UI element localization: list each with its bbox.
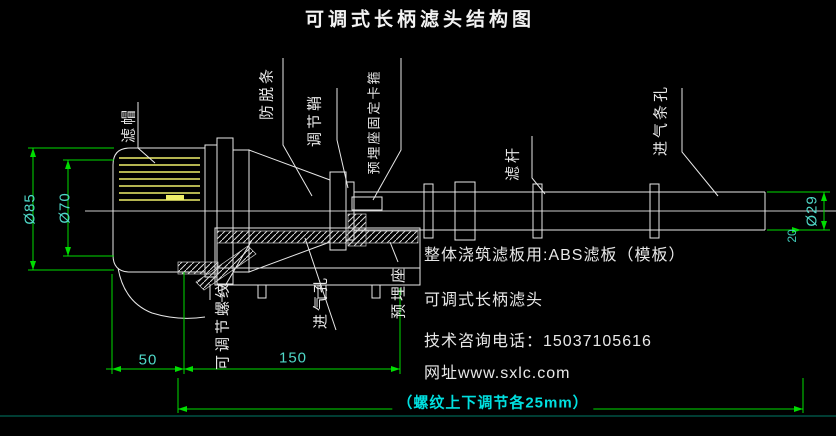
label-air-inlet-hole: 进气孔 [310, 275, 331, 329]
note-website: 网址www.sxlc.com [424, 359, 570, 383]
note-phone: 技术咨询电话：15037105616 [424, 327, 652, 351]
note-abs-board: 整体浇筑滤板用:ABS滤板（模板） [424, 241, 685, 265]
filter-cap-outline [113, 148, 205, 318]
technical-drawing-canvas [0, 0, 836, 436]
drawing-title: 可调式长柄滤头结构图 [305, 5, 535, 32]
dim-length-50: 50 [139, 352, 158, 369]
cap-slots [119, 158, 200, 200]
label-air-inlet-slots: 进气条孔 [650, 84, 671, 156]
label-embed-seat-clamp: 预埋座固定卡箍 [364, 69, 383, 174]
label-anti-slip-strip: 防脱条 [256, 66, 277, 120]
label-adjusting-sheath: 调节鞘 [304, 93, 325, 147]
dim-rod-end: 20 [785, 229, 799, 242]
hatch-regions [178, 214, 418, 290]
label-filter-cap: 滤帽 [118, 107, 139, 143]
label-embedded-seat: 预埋座 [388, 265, 409, 319]
dim-length-150: 150 [279, 350, 307, 367]
cad-drawing-page: 可调式长柄滤头结构图 滤帽 防脱条 调节鞘 预埋座固定卡箍 滤杆 进气条孔 可调… [0, 0, 836, 436]
dim-cap-inner-dia: Ø70 [57, 192, 74, 223]
dim-thread-note: （螺纹上下调节各25mm） [392, 392, 593, 413]
label-filter-rod: 滤杆 [502, 145, 523, 181]
note-product-name: 可调式长柄滤头 [424, 286, 543, 310]
dim-cap-outer-dia: Ø85 [22, 193, 39, 224]
dim-rod-dia: Ø29 [804, 195, 821, 226]
label-adjustable-thread: 可调节螺纹 [212, 280, 233, 370]
